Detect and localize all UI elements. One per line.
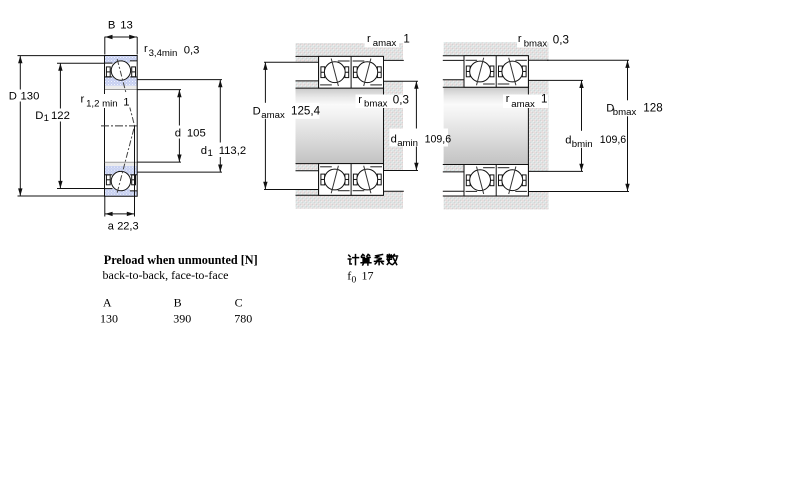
svg-text:d: d (565, 134, 571, 146)
svg-text:bmin: bmin (572, 139, 593, 150)
svg-text:d: d (201, 145, 207, 157)
svg-text:bmax: bmax (613, 107, 637, 118)
svg-text:122: 122 (51, 110, 70, 122)
svg-text:1: 1 (208, 148, 213, 159)
svg-text:0,3: 0,3 (553, 34, 569, 47)
svg-text:a: a (108, 220, 115, 232)
svg-text:D: D (9, 91, 17, 103)
svg-text:1: 1 (44, 113, 49, 124)
svg-text:B: B (174, 295, 182, 309)
svg-text:amax: amax (511, 99, 535, 110)
svg-text:r: r (144, 43, 148, 55)
svg-text:D: D (253, 106, 261, 118)
svg-text:390: 390 (173, 312, 191, 326)
svg-text:1: 1 (123, 96, 129, 108)
svg-text:d: d (175, 128, 181, 140)
svg-text:109,6: 109,6 (425, 133, 452, 145)
svg-text:105: 105 (187, 128, 206, 140)
svg-text:B: B (108, 20, 116, 32)
svg-text:Preload when unmounted [N]: Preload when unmounted [N] (104, 253, 258, 267)
svg-text:C: C (235, 295, 243, 309)
svg-text:0: 0 (352, 275, 357, 285)
svg-text:bmax: bmax (524, 38, 548, 49)
svg-text:d: d (391, 134, 397, 146)
svg-text:A: A (103, 295, 112, 309)
svg-text:r: r (518, 33, 522, 45)
svg-text:125,4: 125,4 (291, 105, 321, 118)
svg-text:back-to-back, face-to-face: back-to-back, face-to-face (103, 268, 229, 282)
svg-text:113,2: 113,2 (219, 145, 246, 157)
svg-text:D: D (35, 110, 43, 122)
svg-text:130: 130 (100, 312, 118, 326)
svg-text:17: 17 (362, 268, 374, 282)
svg-text:bmax: bmax (364, 99, 388, 110)
svg-text:3,4min: 3,4min (149, 48, 178, 59)
svg-text:1,2 min: 1,2 min (86, 99, 117, 110)
svg-text:r: r (81, 93, 85, 105)
svg-text:1: 1 (541, 93, 547, 106)
svg-text:amin: amin (397, 138, 418, 149)
svg-text:130: 130 (21, 91, 40, 103)
svg-text:22,3: 22,3 (117, 220, 138, 232)
svg-text:amax: amax (373, 38, 397, 49)
svg-text:1: 1 (403, 32, 409, 45)
svg-text:r: r (367, 33, 371, 45)
svg-text:0,3: 0,3 (184, 44, 200, 56)
svg-text:109,6: 109,6 (600, 134, 627, 146)
svg-text:13: 13 (120, 20, 133, 32)
svg-text:780: 780 (234, 312, 252, 326)
svg-text:r: r (358, 94, 362, 106)
svg-text:r: r (506, 93, 510, 105)
svg-text:0,3: 0,3 (393, 93, 409, 106)
svg-text:128: 128 (643, 101, 662, 114)
svg-text:amax: amax (261, 110, 285, 121)
